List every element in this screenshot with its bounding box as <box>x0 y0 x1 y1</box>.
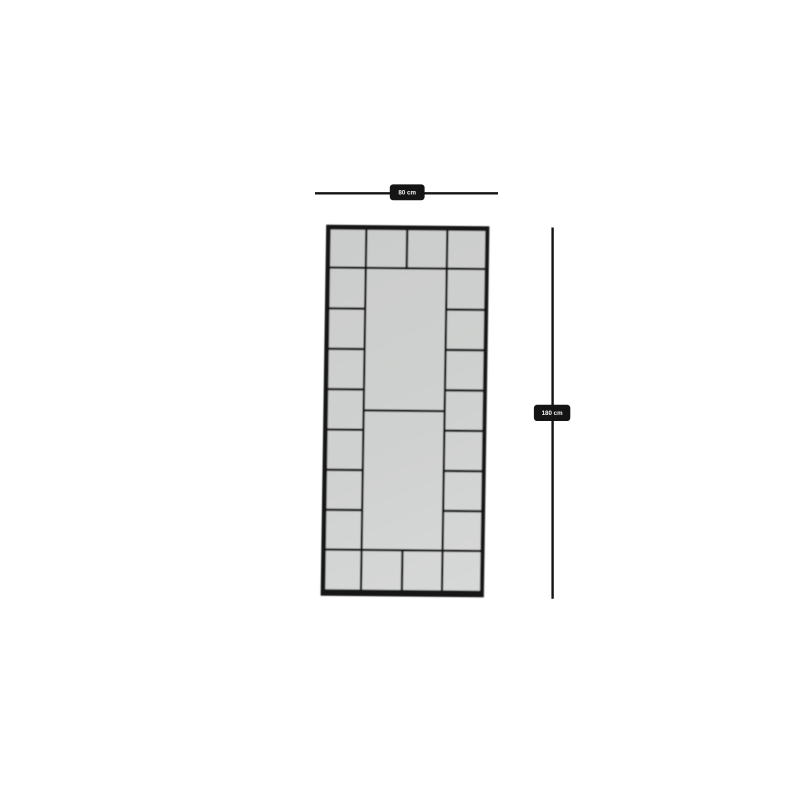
svg-text:80 cm: 80 cm <box>398 190 416 197</box>
svg-text:180 cm: 180 cm <box>542 410 563 417</box>
